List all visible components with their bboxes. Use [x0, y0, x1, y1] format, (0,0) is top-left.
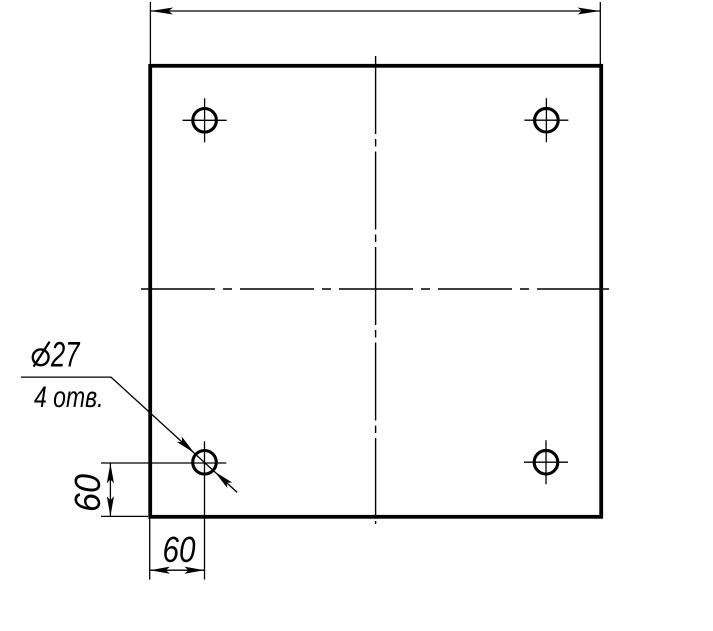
svg-text:60: 60 — [163, 529, 196, 570]
svg-text:60: 60 — [67, 474, 108, 512]
svg-text:4 отв.: 4 отв. — [34, 381, 104, 414]
svg-text:27: 27 — [50, 336, 80, 375]
